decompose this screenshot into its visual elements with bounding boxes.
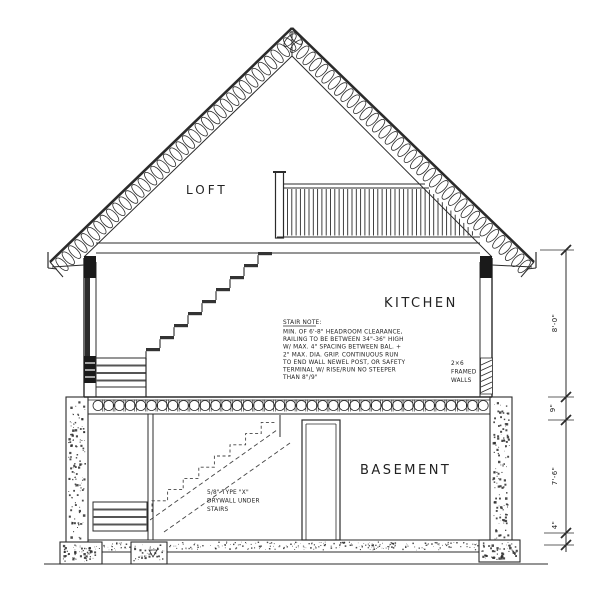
room-label-kitchen: KITCHEN [384,296,458,311]
svg-text:2" MAX. DIA. GRIP. CONTINUOUS: 2" MAX. DIA. GRIP. CONTINUOUS RUN [283,352,398,358]
svg-text:STAIRS: STAIRS [207,507,228,513]
dim-slab: 4" [551,521,559,529]
floor-lines [84,237,492,540]
roof-insulation-batts [54,30,532,275]
svg-text:5/8" TYPE "X": 5/8" TYPE "X" [207,490,249,496]
main-stairs [146,252,272,360]
svg-text:TERMINAL W/ RISE/RUN NO STEEPE: TERMINAL W/ RISE/RUN NO STEEPER [282,368,396,374]
dim-floor-depth: 9" [549,404,557,412]
stair-note: STAIR NOTE: MIN. OF 6'-8" HEADROOM CLEAR… [282,320,405,381]
svg-text:2×6: 2×6 [451,361,464,367]
concrete-walls-footings [44,397,548,564]
dimension-lines [540,245,574,552]
drywall-note: 5/8" TYPE "X" DRYWALL UNDER STAIRS [207,490,260,513]
framed-wall-note: 2×6 FRAMED WALLS [451,361,477,384]
floor-joist-insulation [93,400,488,412]
house-section-drawing: LOFT KITCHEN BASEMENT STAIR NOTE: MIN. O… [0,0,600,596]
svg-text:THAN 8"/9": THAN 8"/9" [282,375,318,381]
dim-basement: 7'-6" [551,467,559,486]
dim-main-floor: 8'-0" [551,314,559,333]
svg-text:FRAMED: FRAMED [451,370,477,376]
room-label-basement: BASEMENT [360,463,451,478]
svg-text:WALLS: WALLS [451,378,472,384]
svg-text:MIN. OF 6'-8" HEADROOM CLEARAN: MIN. OF 6'-8" HEADROOM CLEARANCE, [283,330,403,336]
blueprint-canvas: LOFT KITCHEN BASEMENT STAIR NOTE: MIN. O… [0,0,600,596]
svg-text:TO END WALL NEWEL POST, OR SAF: TO END WALL NEWEL POST, OR SAFETY [282,360,405,366]
room-label-loft: LOFT [186,183,228,197]
stair-note-title: STAIR NOTE: [283,320,322,326]
basement-door [302,420,340,540]
roof-outline [48,28,536,277]
svg-text:W/ MAX. 4" SPACING BETWEEN BAL: W/ MAX. 4" SPACING BETWEEN BAL. + [283,345,401,351]
basement-stairs-dashed [150,422,290,532]
svg-text:RAILING TO BE BETWEEN 34"-36": RAILING TO BE BETWEEN 34"-36" HIGH [283,337,404,343]
svg-text:DRYWALL UNDER: DRYWALL UNDER [207,499,260,505]
